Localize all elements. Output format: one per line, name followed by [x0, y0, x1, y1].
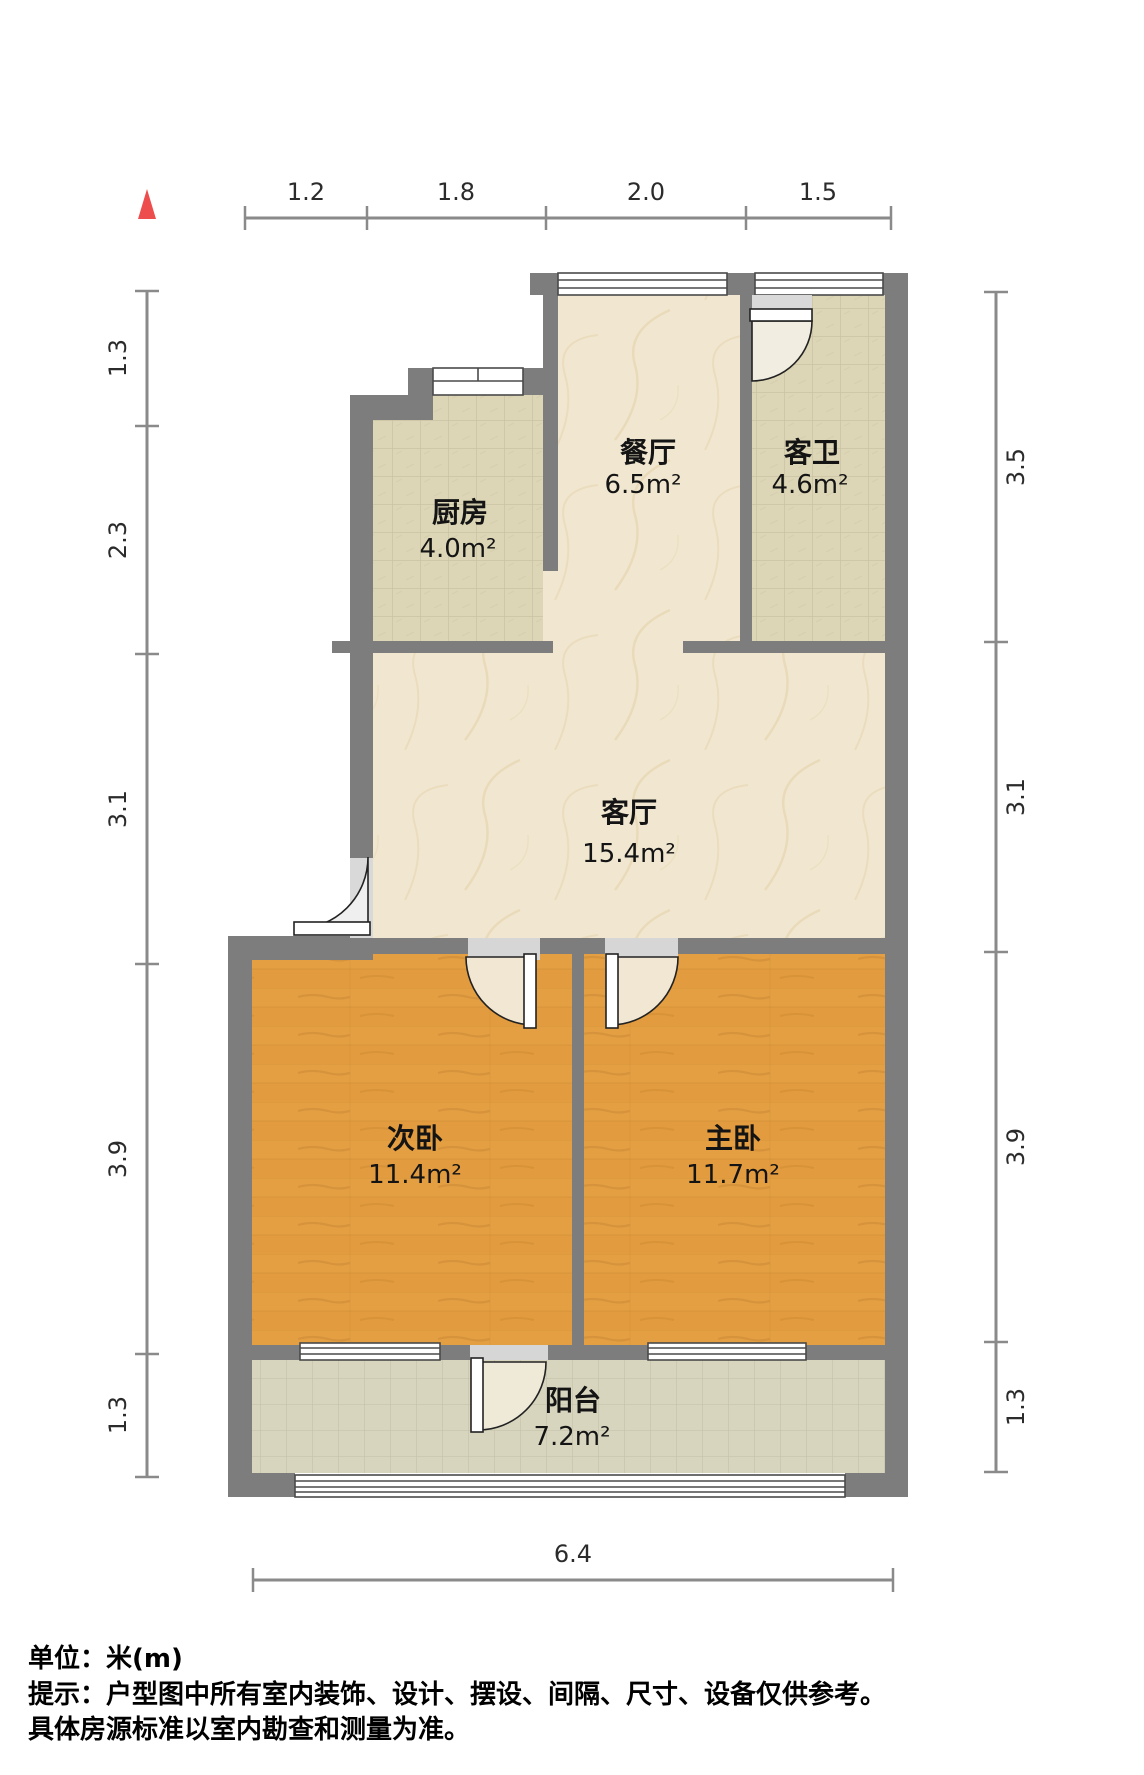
dim-left-5: 1.3 — [104, 1396, 132, 1434]
dining-room-area: 6.5m² — [604, 470, 681, 500]
dim-bottom-1: 6.4 — [554, 1540, 592, 1568]
floorplan-svg: 餐厅 6.5m² 客卫 4.6m² 厨房 4.0m² 客厅 15.4m² 次卧 … — [0, 0, 1144, 1775]
dim-top-1: 1.2 — [287, 178, 325, 206]
living-room-label: 客厅 — [601, 796, 657, 829]
entrance-door — [294, 857, 373, 938]
dim-top-3: 2.0 — [627, 178, 665, 206]
dim-left-4: 3.9 — [104, 1140, 132, 1178]
kitchen-floor-main — [373, 420, 543, 641]
footer-unit-line: 单位：米(m) — [28, 1643, 183, 1674]
dining-window — [558, 273, 727, 295]
dim-left-2: 2.3 — [104, 521, 132, 559]
kitchen-label: 厨房 — [432, 496, 488, 529]
dining-room-label: 餐厅 — [620, 436, 676, 469]
master-bedroom-label: 主卧 — [705, 1122, 761, 1155]
balcony-exterior-window — [295, 1475, 845, 1497]
bedroom2-area: 11.4m² — [368, 1160, 462, 1190]
master-bedroom-area: 11.7m² — [686, 1160, 780, 1190]
dim-top-4: 1.5 — [799, 178, 837, 206]
bedroom2-balcony-window — [300, 1343, 440, 1360]
balcony-label: 阳台 — [545, 1384, 601, 1417]
dim-left-3: 3.1 — [104, 790, 132, 828]
north-arrow-icon — [138, 189, 156, 219]
bedroom2-label: 次卧 — [387, 1122, 443, 1155]
footer-tip-line1: 提示：户型图中所有室内装饰、设计、摆设、间隔、尺寸、设备仅供参考。 — [28, 1679, 886, 1710]
bathroom-label: 客卫 — [784, 436, 840, 469]
balcony-area: 7.2m² — [533, 1422, 610, 1452]
master-balcony-window — [648, 1343, 806, 1360]
dim-right-2: 3.1 — [1002, 778, 1030, 816]
footer: 单位：米(m) 提示：户型图中所有室内装饰、设计、摆设、间隔、尺寸、设备仅供参考… — [28, 1643, 886, 1745]
bathroom-window — [755, 273, 883, 295]
floorplan-page: 餐厅 6.5m² 客卫 4.6m² 厨房 4.0m² 客厅 15.4m² 次卧 … — [0, 0, 1144, 1775]
dim-right-1: 3.5 — [1002, 448, 1030, 486]
dim-left-1: 1.3 — [104, 339, 132, 377]
dim-right-3: 3.9 — [1002, 1128, 1030, 1166]
footer-tip-line2: 具体房源标准以室内勘查和测量为准。 — [28, 1714, 470, 1745]
dim-top-2: 1.8 — [437, 178, 475, 206]
kitchen-area: 4.0m² — [419, 534, 496, 564]
dim-right-4: 1.3 — [1002, 1388, 1030, 1426]
kitchen-window — [433, 368, 523, 395]
bathroom-area: 4.6m² — [771, 470, 848, 500]
living-room-area: 15.4m² — [582, 839, 676, 869]
